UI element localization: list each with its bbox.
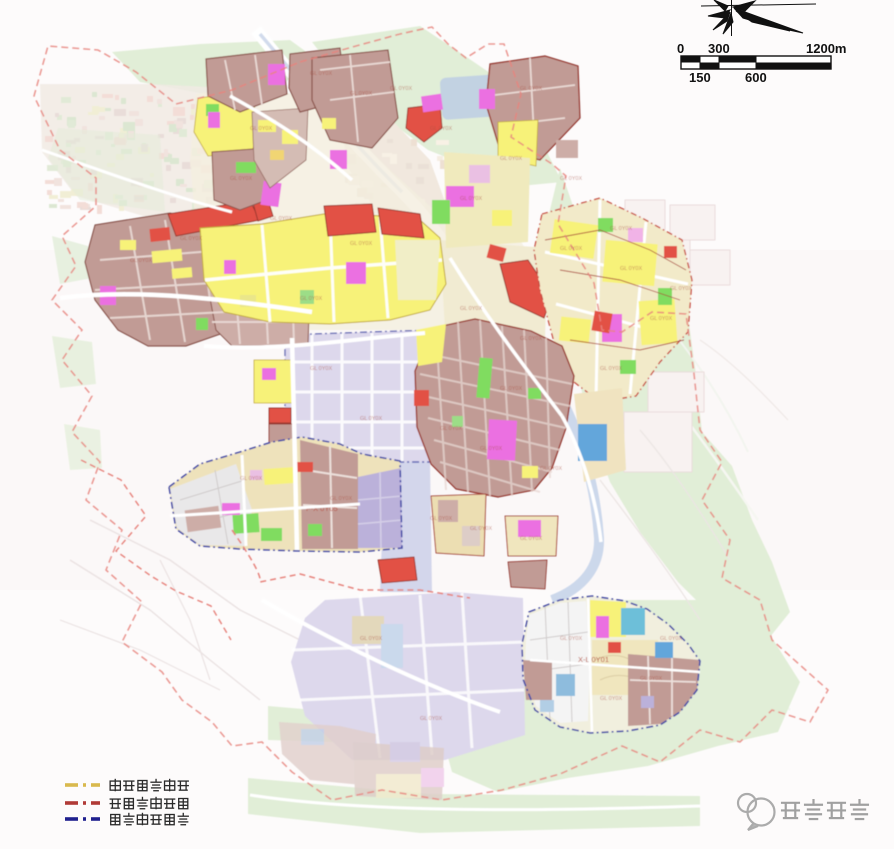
svg-text:600: 600 [745,70,767,85]
svg-text:1200m: 1200m [806,41,846,56]
svg-text:150: 150 [689,70,711,85]
svg-text:300: 300 [708,41,730,56]
svg-text:0: 0 [677,41,684,56]
